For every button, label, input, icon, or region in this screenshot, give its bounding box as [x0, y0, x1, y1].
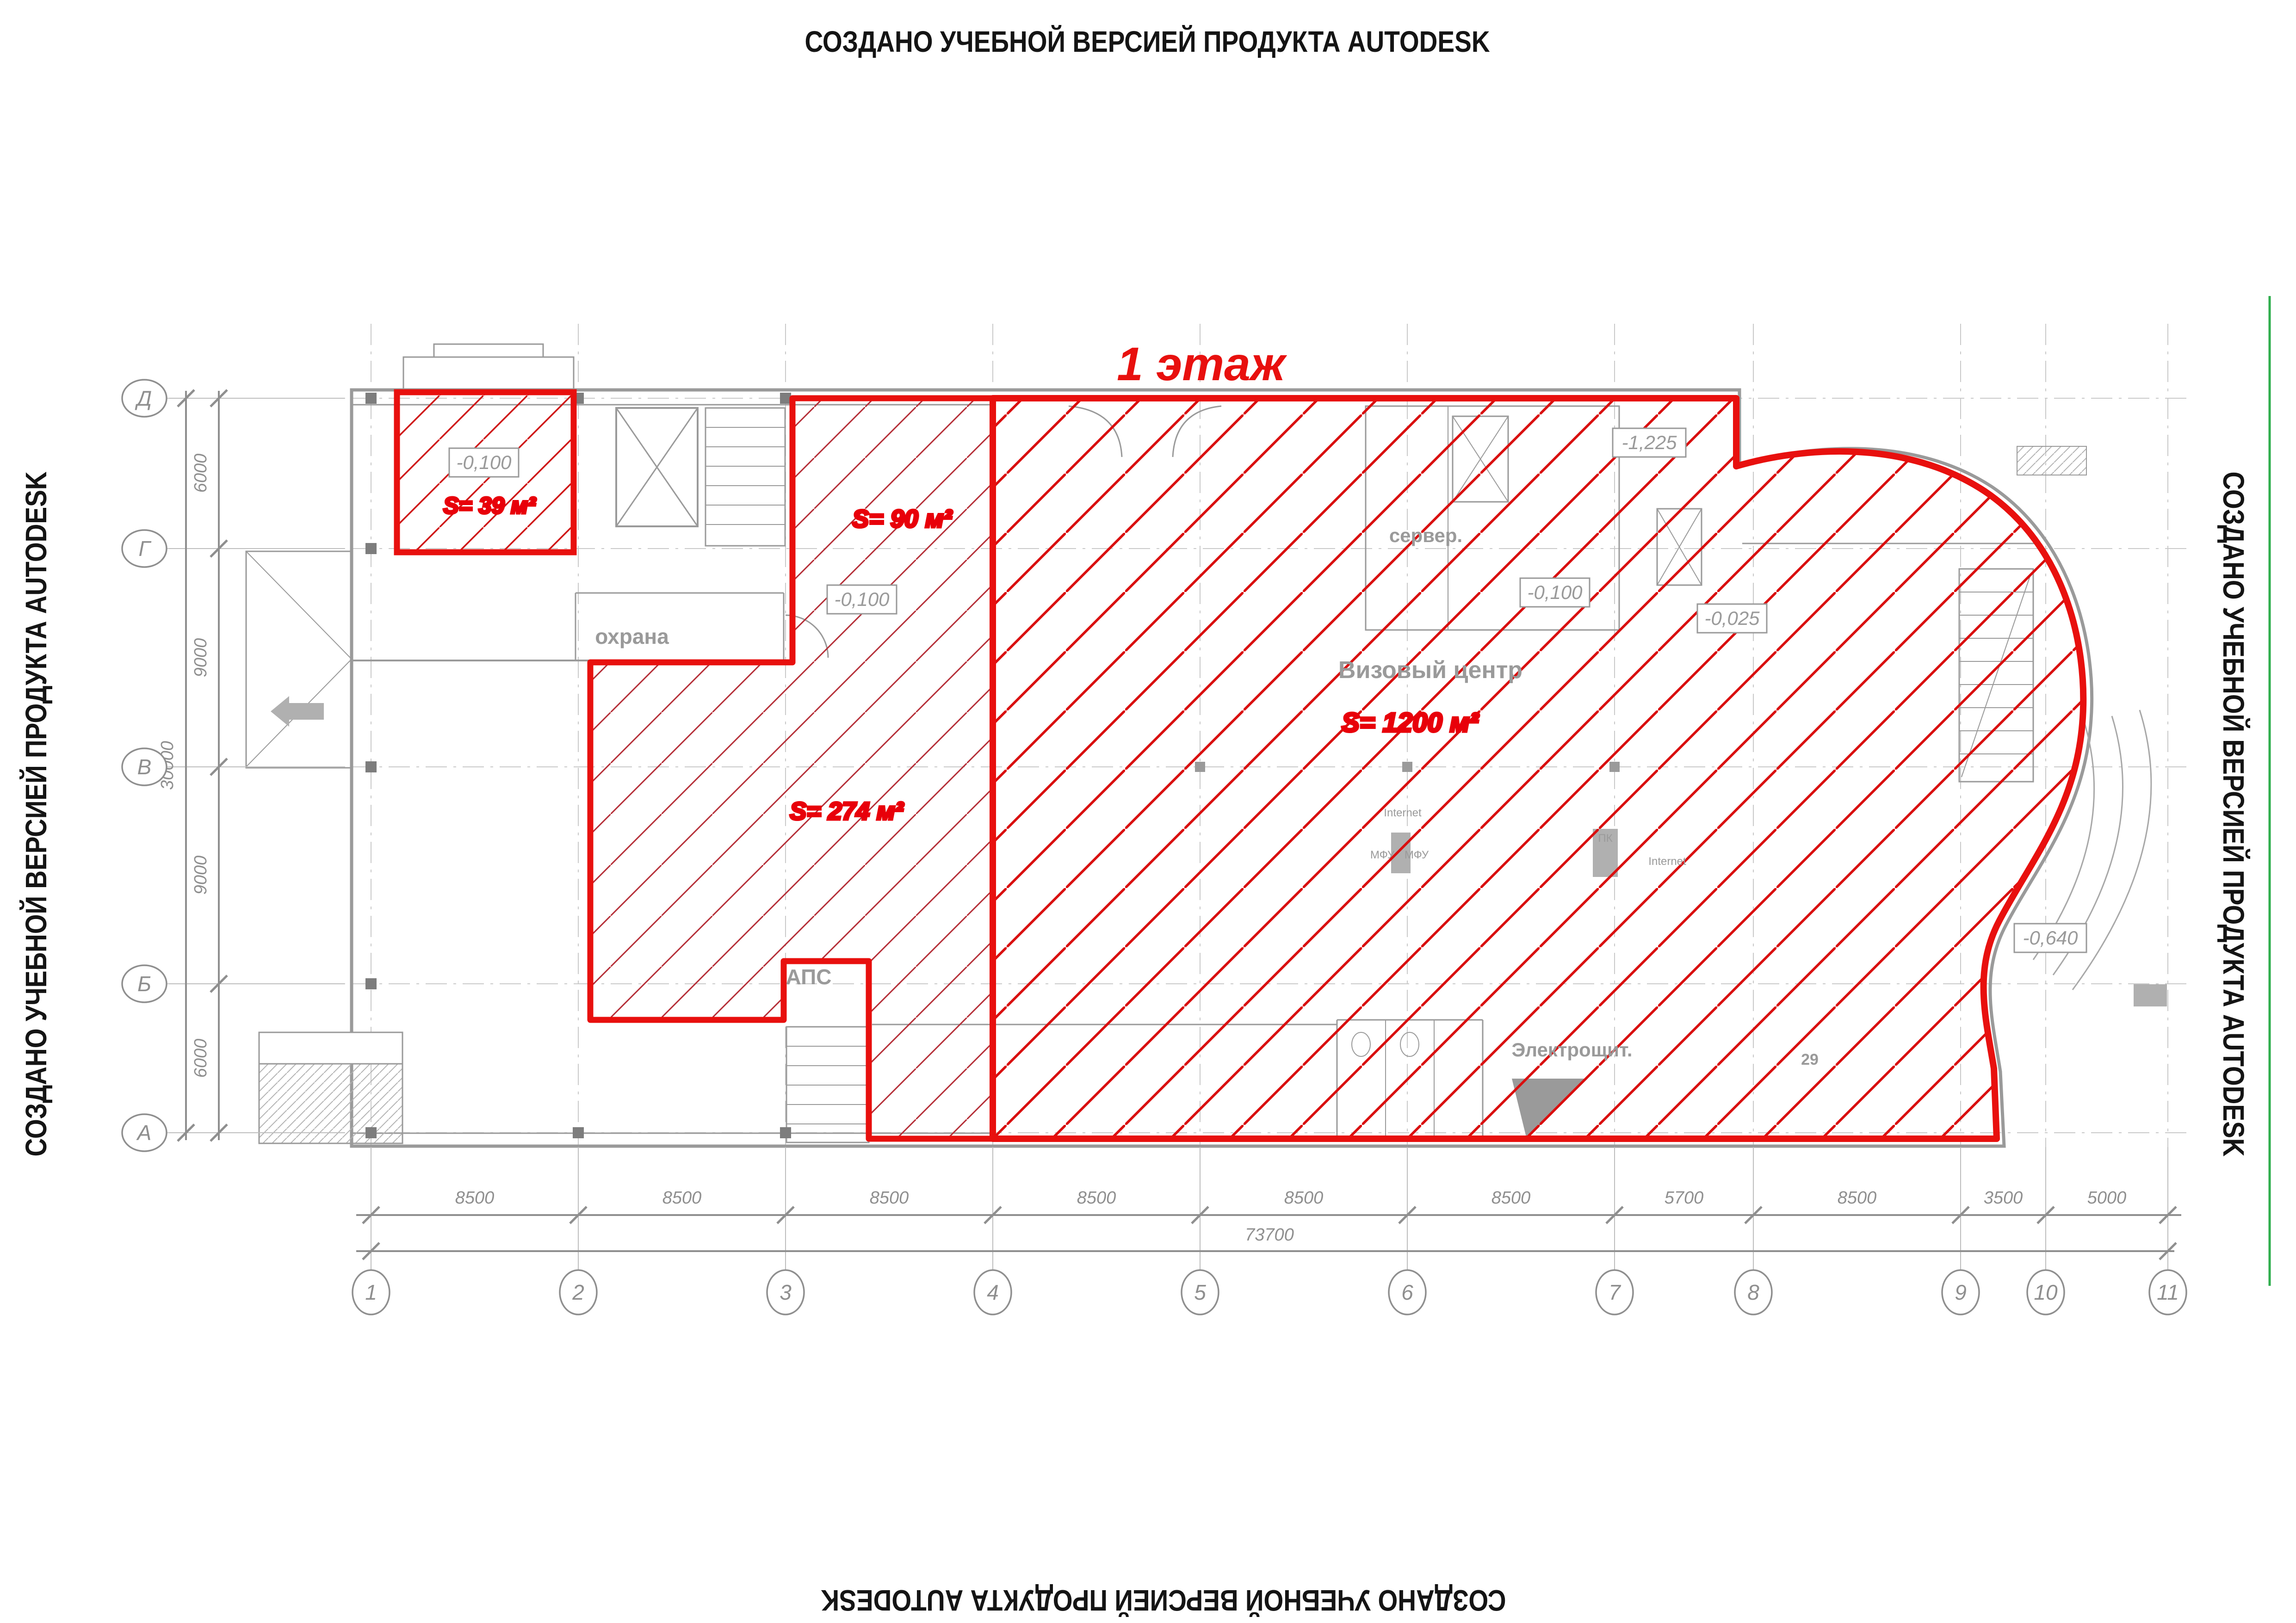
axis-8: 8 [1747, 1280, 1759, 1304]
axis-b: Б [137, 972, 151, 996]
axis-6: 6 [1401, 1280, 1413, 1304]
dimension-chain-bottom [356, 1147, 2181, 1271]
axis-v: В [137, 755, 152, 779]
dim-4-5: 8500 [1077, 1188, 1116, 1208]
elevation-terrace: -0,640 [2014, 924, 2086, 952]
room-29-label: 29 [1801, 1051, 1819, 1068]
axis-1: 1 [365, 1280, 377, 1304]
visa-center-label: Визовый центр [1338, 657, 1522, 684]
zone-274-area: S= 274 м² [790, 797, 904, 825]
dim-g-v: 9000 [191, 638, 210, 678]
elevation-hall-1-value: -0,100 [1527, 581, 1583, 603]
page-title: 1 этаж [1117, 338, 1287, 390]
zone-1200 [993, 398, 2083, 1139]
zone-90-area: S= 90 м² [852, 505, 953, 533]
watermark-bottom: СОЗДАНО УЧЕБНОЙ ВЕРСИЕЙ ПРОДУКТА AUTODES… [821, 1584, 1506, 1617]
axis-11: 11 [2157, 1280, 2179, 1304]
dim-b-a: 6000 [191, 1039, 210, 1078]
dim-1-2: 8500 [455, 1188, 495, 1208]
elevation-terrace-value: -0,640 [2023, 927, 2078, 949]
security-room-label: охрана [595, 624, 669, 648]
axis-4: 4 [987, 1280, 999, 1304]
left-arrow-icon [271, 696, 324, 727]
dim-v-b: 9000 [191, 856, 210, 895]
elevation-hall-1: -0,100 [1520, 578, 1590, 607]
axis-7: 7 [1609, 1280, 1621, 1304]
elevation-entrance-value: -1,225 [1621, 432, 1677, 453]
elevation-zone-a: -0,100 [449, 448, 519, 477]
watermark-right: СОЗДАНО УЧЕБНОЙ ВЕРСИЕЙ ПРОДУКТА AUTODES… [2217, 471, 2250, 1156]
pc-label: ПК [1598, 832, 1612, 845]
elevation-zone-b-value: -0,100 [834, 588, 890, 610]
axis-3: 3 [780, 1280, 792, 1304]
dim-2-3: 8500 [662, 1188, 702, 1208]
grid-bubble-numbers: 1 2 3 4 5 6 7 8 9 10 11 [365, 1280, 2179, 1304]
dim-total-bottom: 73700 [1245, 1225, 1294, 1245]
mfu-label-1: МФУ [1370, 849, 1395, 861]
grid-bubbles-bottom [353, 1270, 2186, 1314]
dim-8-9: 8500 [1838, 1188, 1877, 1208]
watermark-left: СОЗДАНО УЧЕБНОЙ ВЕРСИЕЙ ПРОДУКТА AUTODES… [19, 471, 53, 1156]
dimension-values-bottom: 8500 8500 8500 8500 8500 8500 5700 8500 … [455, 1188, 2127, 1245]
dim-7-8: 5700 [1665, 1188, 1704, 1208]
elevation-zone-a-value: -0,100 [456, 451, 512, 473]
zone-39-area: S= 39 м² [443, 493, 536, 518]
elevation-hall-2: -0,025 [1697, 604, 1767, 633]
dim-3-4: 8500 [870, 1188, 909, 1208]
axis-d: Д [135, 386, 152, 410]
zone-1200-area: S= 1200 м² [1342, 708, 1479, 738]
electrical-room-label: Электрощит. [1511, 1039, 1632, 1061]
floor-plan-canvas: СОЗДАНО УЧЕБНОЙ ВЕРСИЕЙ ПРОДУКТА AUTODES… [0, 0, 2296, 1623]
elevation-hall-2-value: -0,025 [1704, 607, 1760, 629]
internet-label-2: Internet [1648, 855, 1686, 868]
watermark-top: СОЗДАНО УЧЕБНОЙ ВЕРСИЕЙ ПРОДУКТА AUTODES… [805, 25, 1490, 58]
axis-g: Г [138, 537, 151, 561]
internet-label-1: Internet [1384, 807, 1422, 819]
fire-alarm-room-label: АПС [786, 965, 832, 989]
grid-bubble-letters: Д Г В Б А [135, 386, 152, 1145]
dim-5-6: 8500 [1284, 1188, 1324, 1208]
axis-10: 10 [2034, 1280, 2058, 1304]
dim-10-11: 5000 [2087, 1188, 2127, 1208]
dimension-chain-left [169, 390, 345, 1141]
axis-9: 9 [1955, 1280, 1967, 1304]
mfu-label-2: МФУ [1405, 849, 1429, 861]
axis-a: А [136, 1121, 152, 1145]
axis-2: 2 [572, 1280, 584, 1304]
server-room-label: сервер. [1389, 525, 1462, 546]
axis-5: 5 [1194, 1280, 1206, 1304]
dim-6-7: 8500 [1491, 1188, 1531, 1208]
elevation-entrance: -1,225 [1613, 428, 1686, 457]
dim-d-g: 6000 [191, 454, 210, 493]
elevation-zone-b: -0,100 [827, 585, 897, 614]
dim-9-10: 3500 [1984, 1188, 2023, 1208]
leased-zones [397, 392, 2083, 1139]
